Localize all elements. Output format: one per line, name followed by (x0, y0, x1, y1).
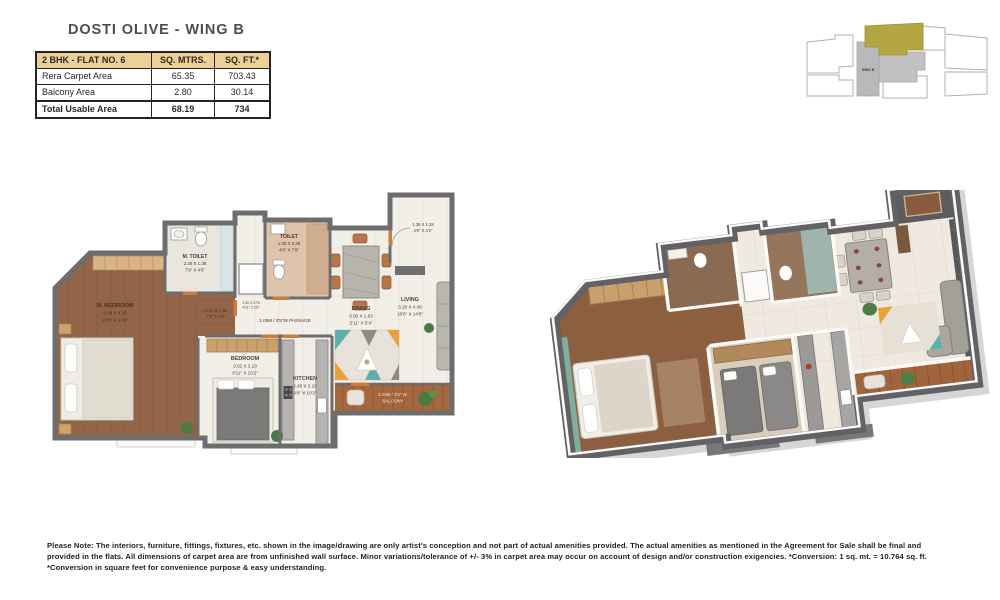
svg-text:KITCHEN: KITCHEN (293, 376, 317, 382)
label-dining: DINING 0.90 X 1.63 2'11" X 5'4" (349, 306, 373, 326)
row-sqft: 30.14 (215, 85, 271, 102)
bedside-table (59, 424, 71, 434)
svg-text:2.38 X 1.38: 2.38 X 1.38 (184, 261, 207, 266)
pillow (577, 367, 594, 396)
keyplan-wing-label: WING B (862, 68, 875, 72)
dining-table (343, 246, 379, 298)
living-rug-3d (878, 301, 942, 356)
svg-text:9'11" X 10'2": 9'11" X 10'2" (232, 371, 258, 376)
keyplan-unit-top-mid-right (923, 26, 945, 50)
label-passage: 1.05M / 3'5"W PASSAGE (259, 318, 310, 323)
svg-text:TOILET: TOILET (280, 234, 298, 240)
svg-text:2.17 X 1.35: 2.17 X 1.35 (205, 308, 227, 313)
svg-text:3.02 X 3.10: 3.02 X 3.10 (233, 364, 257, 369)
label-dressing: 2.17 X 1.35 7'1" X 4'5" (205, 308, 227, 319)
kitchen-hob (284, 386, 293, 399)
kitchen-sink-3d (840, 389, 852, 405)
label-kitchen: KITCHEN 2.45 X 3.10 8'0" X 10'2" (293, 376, 317, 396)
rug (656, 358, 705, 427)
area-table-header-flat: 2 BHK - FLAT NO. 6 (36, 52, 152, 69)
svg-text:BALCONY: BALCONY (383, 399, 404, 404)
keyplan-unit-top-left (807, 35, 853, 73)
table-row: Balcony Area 2.80 30.14 (36, 85, 270, 102)
svg-text:4'6" X 4'2": 4'6" X 4'2" (413, 228, 433, 233)
pillow (218, 380, 234, 389)
table-row-total: Total Usable Area 68.19 734 (36, 101, 270, 118)
svg-text:1.38 X 2.38: 1.38 X 2.38 (278, 241, 301, 246)
svg-text:4'11" X 2'6": 4'11" X 2'6" (242, 306, 260, 310)
wc-bowl (196, 232, 207, 246)
bedroom2-duvet (217, 388, 269, 440)
svg-text:M. BEDROOM: M. BEDROOM (97, 303, 134, 309)
keyplan-unit-bottom-left (807, 75, 853, 96)
floorplan-3d (503, 190, 995, 458)
kitchen-sink (318, 398, 327, 413)
svg-text:DINING: DINING (352, 306, 371, 312)
duct-3d (742, 270, 770, 302)
disclaimer-note: Please Note: The interiors, furniture, f… (47, 541, 955, 573)
svg-text:1.50 X 0.75: 1.50 X 0.75 (242, 301, 259, 305)
area-table-header-sqft: SQ. FT.* (215, 52, 271, 69)
svg-text:4'6" X 7'9": 4'6" X 7'9" (279, 248, 299, 253)
wc-bowl (274, 265, 285, 279)
label-foyer: 1.38 X 1.28 4'6" X 4'2" (412, 222, 434, 233)
svg-text:10'6" X 13'9": 10'6" X 13'9" (102, 318, 128, 323)
svg-text:10'6" X 14'8": 10'6" X 14'8" (397, 312, 423, 317)
label-bedroom2: BEDROOM 3.02 X 3.10 9'11" X 10'2" (231, 356, 260, 376)
plant (181, 422, 193, 434)
pillow (65, 384, 77, 412)
row-sqft: 734 (215, 101, 271, 118)
area-table: 2 BHK - FLAT NO. 6 SQ. MTRS. SQ. FT.* Re… (35, 51, 271, 119)
pillow (763, 366, 776, 376)
svg-text:1.38 X 1.28: 1.38 X 1.28 (412, 222, 434, 227)
svg-text:1.05M / 3'5"W PASSAGE: 1.05M / 3'5"W PASSAGE (259, 318, 310, 323)
table-row: Rera Carpet Area 65.35 703.43 (36, 69, 270, 85)
tv-console (395, 266, 425, 275)
painting (904, 192, 942, 216)
row-sqmtrs: 68.19 (152, 101, 215, 118)
master-duvet-3d (594, 359, 654, 433)
row-label: Total Usable Area (36, 101, 152, 118)
vanity (668, 248, 688, 259)
pillow (65, 344, 77, 372)
svg-text:7'1" X 4'5": 7'1" X 4'5" (206, 314, 226, 319)
label-balcony: 1.00M / 3'3" W. BALCONY (378, 392, 407, 404)
brochure-page: DOSTI OLIVE - WING B 2 BHK - FLAT NO. 6 … (0, 0, 1000, 600)
svg-text:1.00M / 3'3" W.: 1.00M / 3'3" W. (378, 392, 407, 397)
row-sqmtrs: 65.35 (152, 69, 215, 85)
svg-text:3.20 X 4.48: 3.20 X 4.48 (398, 305, 422, 310)
living-rug (335, 330, 399, 380)
iso-group (523, 190, 995, 458)
row-label: Rera Carpet Area (36, 69, 152, 85)
label-toilet: TOILET 1.38 X 2.38 4'6" X 7'9" (278, 234, 301, 253)
pillow (238, 380, 254, 389)
wc-tank (195, 227, 207, 232)
svg-text:2'11" X 5'4": 2'11" X 5'4" (349, 321, 372, 326)
balcony-sofa-3d (863, 374, 885, 389)
svg-text:BEDROOM: BEDROOM (231, 356, 260, 362)
bedside-table (59, 324, 71, 334)
pillow (582, 404, 599, 433)
label-m-toilet: M. TOILET 2.38 X 1.38 7'9" X 4'6" (183, 254, 208, 273)
pillow (723, 371, 736, 381)
row-sqft: 703.43 (215, 69, 271, 85)
wc-tank (273, 260, 285, 265)
svg-text:8'0" X 10'2": 8'0" X 10'2" (293, 391, 317, 396)
label-shaft: 1.50 X 0.75 4'11" X 2'6" (242, 301, 260, 310)
svg-text:LIVING: LIVING (401, 297, 419, 303)
svg-text:2.45 X 3.10: 2.45 X 3.10 (293, 384, 317, 389)
master-duvet (83, 340, 131, 418)
washbasin-bowl (174, 231, 184, 238)
keyplan-unit-bottom-right (945, 72, 987, 96)
toilet-shower (307, 224, 327, 294)
row-sqmtrs: 2.80 (152, 85, 215, 102)
plant (424, 323, 434, 333)
page-title: DOSTI OLIVE - WING B (68, 22, 245, 38)
area-table-header-row: 2 BHK - FLAT NO. 6 SQ. MTRS. SQ. FT.* (36, 52, 270, 69)
svg-text:0.90 X 1.63: 0.90 X 1.63 (349, 314, 373, 319)
row-label: Balcony Area (36, 85, 152, 102)
svg-text:M. TOILET: M. TOILET (183, 254, 208, 260)
kitchen-counter-right (316, 340, 328, 444)
shower-glass (221, 225, 233, 291)
dining-table-3d (845, 238, 892, 292)
balcony-chair (347, 390, 364, 405)
duct-box (239, 264, 263, 294)
keyplan-unit-top-right (945, 34, 987, 70)
area-table-header-sqmtrs: SQ. MTRS. (152, 52, 215, 69)
washbasin (271, 224, 285, 234)
svg-text:7'9" X 4'6": 7'9" X 4'6" (185, 268, 205, 273)
keyplan-locator: WING B (795, 14, 995, 102)
svg-text:3.20 X 4.20: 3.20 X 4.20 (103, 311, 127, 316)
plant (429, 390, 437, 398)
floorplan-2d: M. BEDROOM 3.20 X 4.20 10'6" X 13'9" 2.1… (35, 188, 465, 456)
